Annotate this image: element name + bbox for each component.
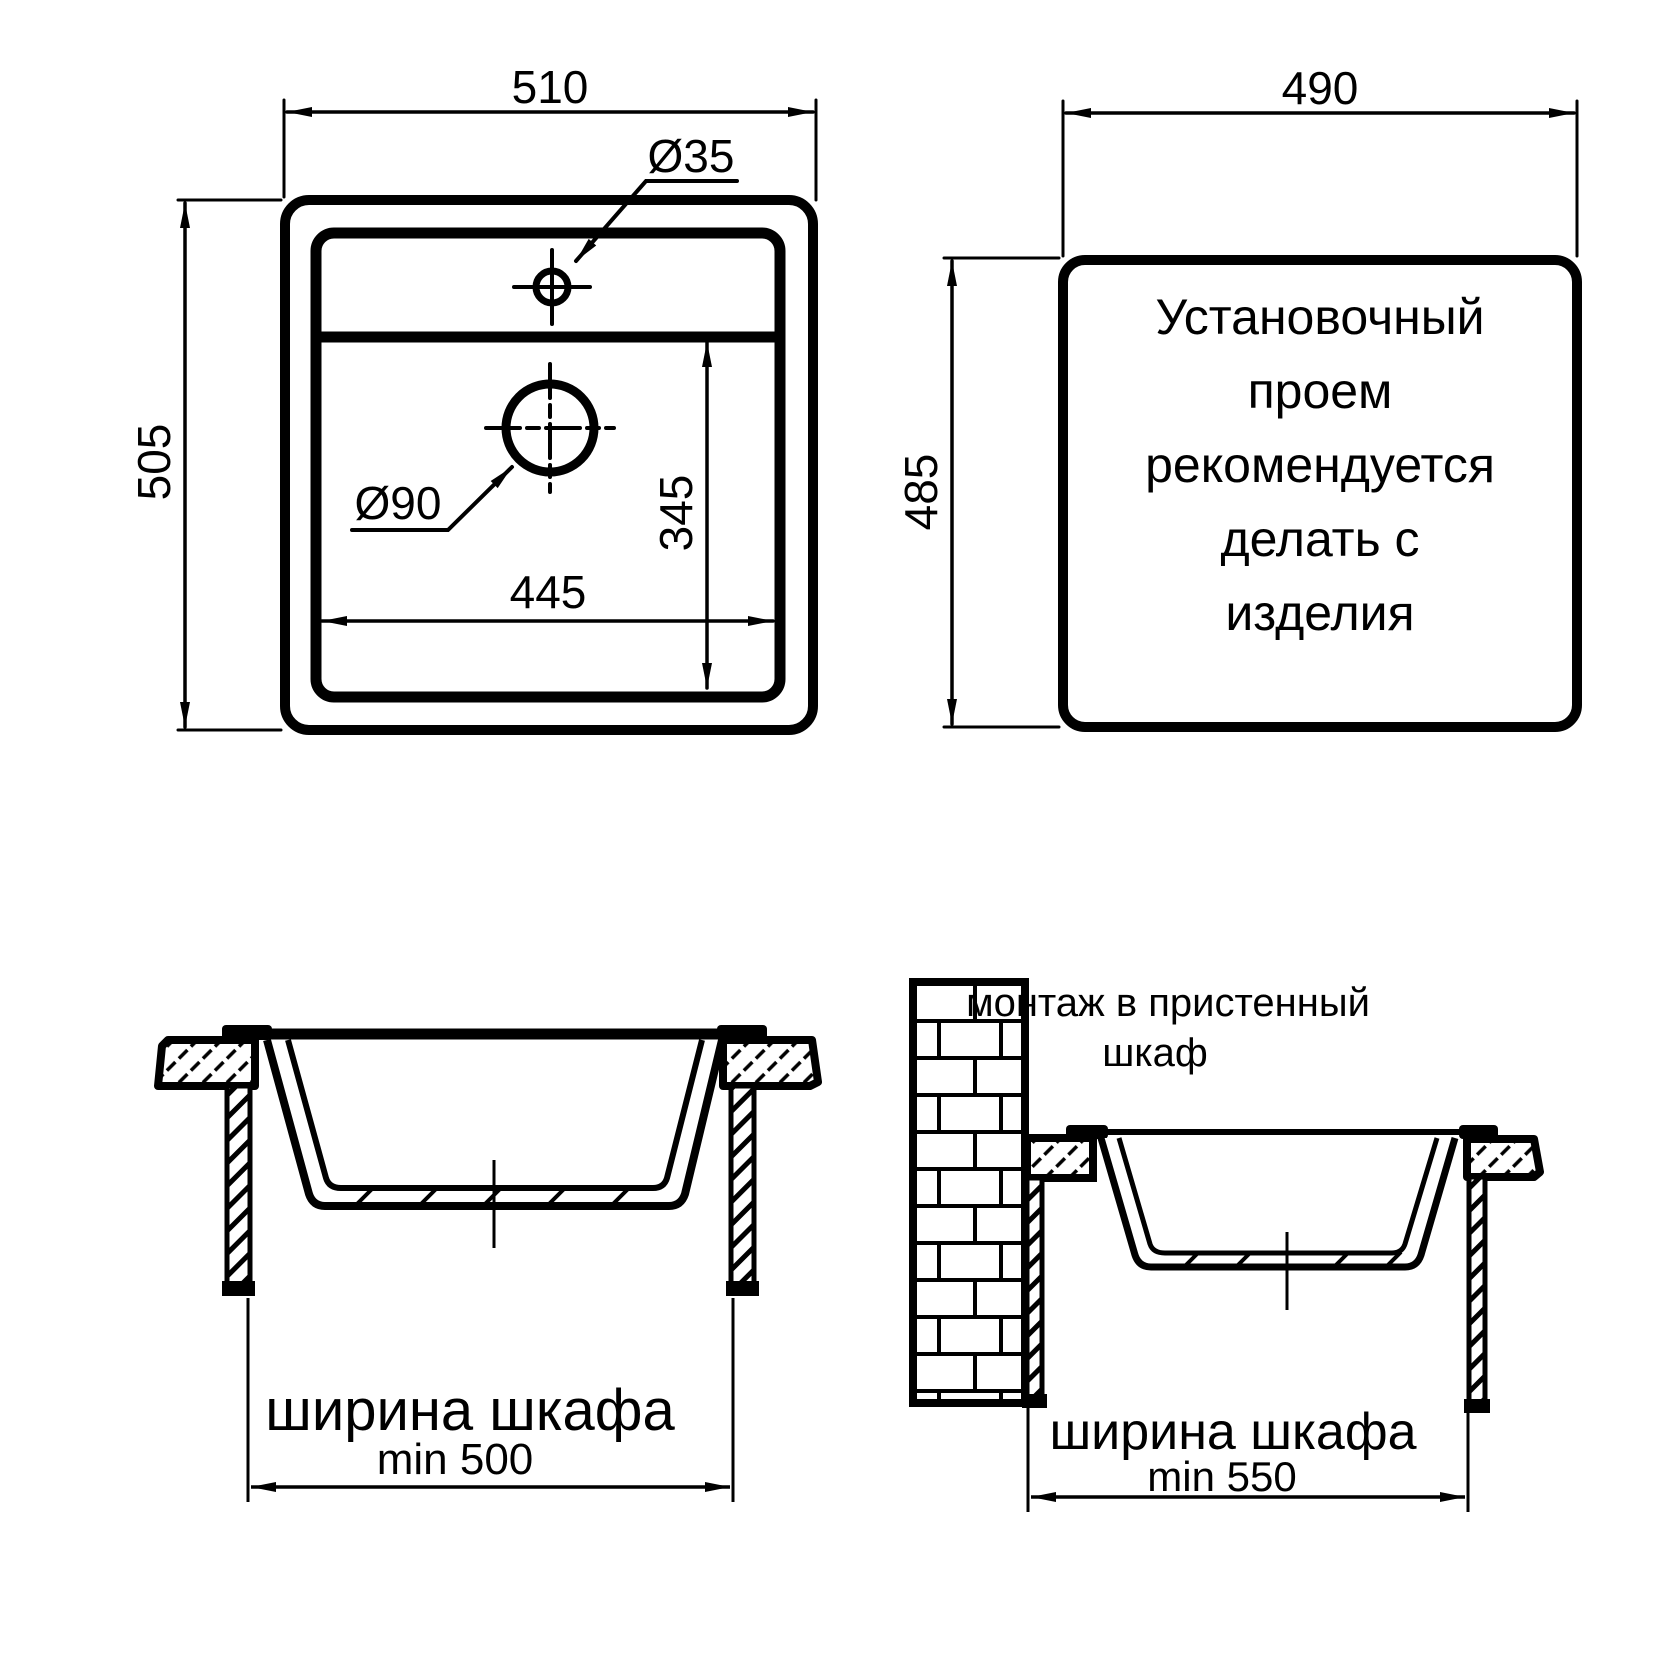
svg-text:505: 505 [128,424,180,501]
wall-section-title: монтаж в пристенный [966,981,1370,1025]
countertop-left-wall-side [1027,1138,1093,1178]
cutout-drawing: 490 485 Установочный проем рекомендуется… [895,62,1577,727]
cutout-note-line: рекомендуется [1145,437,1495,493]
dim-cabinet-width-front: ширина шкафа min 500 [248,1298,733,1502]
cutout-note-line: Установочный [1155,289,1484,345]
sink-rim-cap-right [717,1025,767,1040]
wall-section-title: шкаф [1102,1031,1208,1075]
dim-cutout-height: 485 [895,258,1059,727]
cabinet-wall-right-ws [1469,1177,1485,1403]
front-section-drawing: ширина шкафа min 500 [158,1025,818,1502]
drain-hole-label: Ø90 [355,477,442,529]
dim-overall-height: 505 [128,200,281,730]
cabinet-width-label: ширина шкафа [265,1378,675,1443]
cutout-note-line: проем [1248,363,1393,419]
countertop-right-wall-side [1467,1139,1540,1177]
cabinet-min-width-label-ws: min 550 [1147,1453,1296,1500]
svg-text:485: 485 [895,454,947,531]
sink-rim-cap-right-ws [1459,1125,1498,1139]
svg-text:445: 445 [510,566,587,618]
svg-text:345: 345 [650,475,702,552]
cabinet-wall-left [227,1086,250,1286]
dim-cabinet-width-wall: ширина шкафа min 550 [1028,1403,1468,1512]
cutout-note-line: изделия [1225,585,1414,641]
svg-text:490: 490 [1282,62,1359,114]
sink-installation-drawing: Ø35 Ø90 510 505 445 345 [0,0,1680,1680]
cabinet-min-width-label: min 500 [377,1435,534,1484]
cabinet-wall-left-ws-cap [1022,1394,1047,1408]
countertop-left [158,1040,255,1086]
sink-rim-cap-left [222,1025,272,1040]
faucet-hole-label: Ø35 [648,130,735,182]
cutout-note-line: делать с [1220,511,1419,567]
cabinet-wall-right-cap [726,1281,759,1296]
drawing-canvas: Ø35 Ø90 510 505 445 345 [0,0,1680,1680]
plan-view-drawing: Ø35 Ø90 510 505 445 345 [128,61,816,730]
cabinet-wall-left-ws [1027,1178,1042,1398]
dim-cutout-width: 490 [1063,62,1577,256]
cabinet-wall-left-cap [222,1281,255,1296]
brick-wall [913,982,1025,1403]
countertop-right [723,1040,818,1086]
cabinet-wall-right-ws-cap [1464,1399,1490,1413]
svg-text:510: 510 [512,61,589,113]
wall-section-drawing: монтаж в пристенный шкаф ширина шкафа [913,981,1540,1512]
cabinet-wall-right [731,1086,754,1286]
